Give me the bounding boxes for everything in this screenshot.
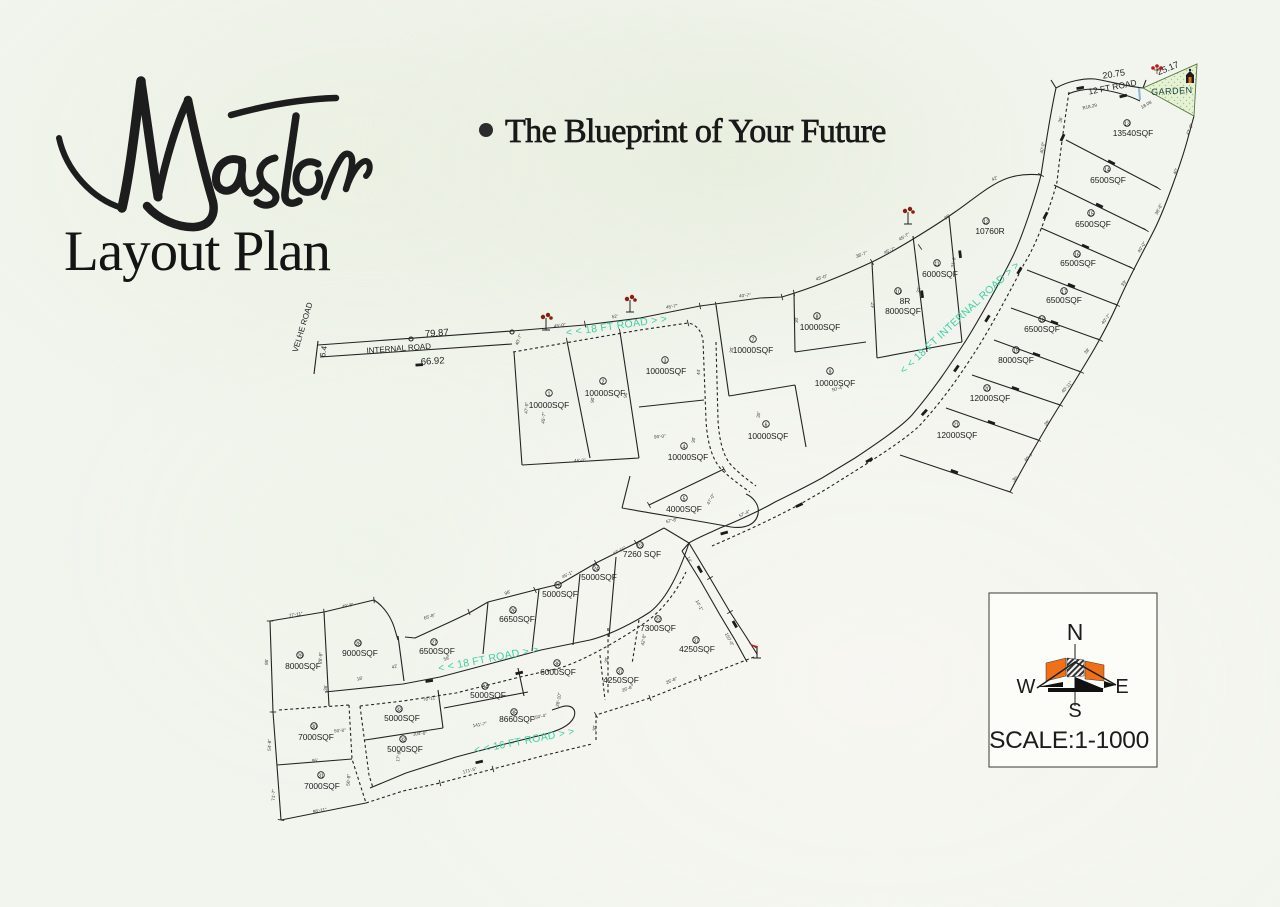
svg-text:18: 18 [1039,318,1045,324]
svg-text:9: 9 [829,370,832,376]
svg-text:36': 36' [1057,116,1063,123]
svg-text:10000SQF: 10000SQF [668,452,709,462]
svg-text:6: 6 [765,423,768,429]
svg-text:6.4: 6.4 [318,345,329,358]
svg-text:45'-7": 45'-7" [666,303,679,310]
svg-text:71'-7": 71'-7" [271,789,276,801]
svg-text:8: 8 [816,315,819,321]
svg-text:50'-8": 50'-8" [346,773,352,785]
svg-text:10: 10 [895,290,901,296]
svg-text:65'-8": 65'-8" [423,612,436,620]
svg-text:4: 4 [683,445,686,451]
svg-text:12000SQF: 12000SQF [970,393,1011,403]
svg-text:5000SQF: 5000SQF [581,572,617,582]
svg-text:VELHE ROAD: VELHE ROAD [291,301,315,353]
svg-text:14': 14' [686,556,693,564]
svg-text:12000SQF: 12000SQF [937,430,978,440]
svg-text:21: 21 [953,423,959,429]
svg-text:1: 1 [548,392,551,398]
svg-text:5000SQF: 5000SQF [387,744,423,754]
svg-text:6500SQF: 6500SQF [419,646,455,656]
svg-text:14'-1": 14'-1" [694,599,704,612]
svg-text:29: 29 [297,654,303,660]
svg-text:E: E [1115,676,1128,698]
svg-text:36': 36' [323,685,329,692]
svg-text:6650SQF: 6650SQF [499,614,535,624]
svg-text:76'-11": 76'-11" [423,695,438,702]
svg-text:39': 39' [1120,279,1128,287]
svg-text:79.87: 79.87 [425,327,449,340]
svg-text:47'-0": 47'-0" [706,493,716,506]
svg-text:54'-8": 54'-8" [267,739,272,751]
svg-text:28'-8": 28'-8" [318,651,324,663]
svg-text:8R: 8R [900,296,911,306]
svg-text:45'-7": 45'-7" [898,231,911,241]
svg-text:7: 7 [752,338,755,344]
svg-text:10760R: 10760R [975,226,1004,236]
svg-text:5000SQF: 5000SQF [542,589,578,599]
svg-text:86': 86' [264,659,269,665]
svg-text:28'-10": 28'-10" [555,692,562,707]
svg-text:10000SQF: 10000SQF [529,400,570,410]
svg-text:20: 20 [984,387,990,393]
svg-text:57'-4": 57'-4" [738,509,751,519]
svg-text:8660SQF: 8660SQF [499,714,535,724]
svg-text:98'-11": 98'-11" [312,807,327,814]
svg-text:13: 13 [1124,122,1130,128]
svg-text:5000SQF: 5000SQF [384,713,420,723]
svg-text:52': 52' [611,314,618,320]
svg-text:18.08: 18.08 [1140,99,1153,109]
svg-text:30': 30' [729,347,735,354]
svg-text:30': 30' [592,725,597,731]
svg-text:4250SQF: 4250SQF [603,675,639,685]
svg-text:38'-8": 38'-8" [1154,203,1164,216]
svg-text:8000SQF: 8000SQF [285,661,321,671]
svg-text:7000SQF: 7000SQF [298,732,334,742]
svg-text:8000SQF: 8000SQF [998,355,1034,365]
svg-text:Layout Plan: Layout Plan [64,220,331,283]
svg-text:90': 90' [590,397,596,404]
svg-text:50'-8": 50'-8" [334,728,346,734]
svg-text:42': 42' [991,175,999,182]
svg-text:10000SQF: 10000SQF [748,431,789,441]
svg-text:57'-8": 57'-8" [665,517,678,524]
svg-text:B18.29: B18.29 [1082,102,1098,110]
svg-text:13540SQF: 13540SQF [1113,128,1154,138]
svg-text:26'-8": 26'-8" [621,684,634,693]
svg-text:40'-7": 40'-7" [1023,451,1035,463]
svg-text:5: 5 [683,497,686,503]
svg-text:47'-0": 47'-0" [524,401,530,413]
svg-text:30': 30' [756,411,762,418]
svg-text:42'-8": 42'-8" [1185,123,1194,136]
svg-text:14: 14 [1104,168,1110,174]
svg-text:30': 30' [691,437,697,444]
svg-text:45'-1": 45'-1" [561,570,574,580]
svg-text:10000SQF: 10000SQF [585,388,626,398]
svg-text:49'-8": 49'-8" [341,602,354,609]
svg-text:3: 3 [664,359,667,365]
svg-text:38'-7": 38'-7" [855,250,868,259]
svg-text:42'-8": 42'-8" [640,633,647,646]
svg-text:19: 19 [1013,349,1019,355]
svg-text:7260 SQF: 7260 SQF [623,549,661,559]
svg-text:10000SQF: 10000SQF [646,366,687,376]
svg-text:44': 44' [696,369,701,375]
svg-text:7000SQF: 7000SQF [304,781,340,791]
svg-text:98': 98' [504,589,512,596]
svg-text:6500SQF: 6500SQF [1090,175,1126,185]
svg-text:150'-0": 150'-0" [724,632,735,647]
svg-text:< < 16 FT ROAD > >: < < 16 FT ROAD > > [473,725,576,756]
svg-text:10000SQF: 10000SQF [733,345,774,355]
svg-text:46'-0": 46'-0" [574,458,586,464]
svg-text:6500SQF: 6500SQF [1024,324,1060,334]
svg-text:90'-0": 90'-0" [654,433,666,439]
svg-text:6000SQF: 6000SQF [540,667,576,677]
svg-text:7300SQF: 7300SQF [640,623,676,633]
svg-text:SCALE:1-1000: SCALE:1-1000 [989,727,1149,754]
svg-text:45'-7": 45'-7" [883,246,896,255]
svg-text:45'-7": 45'-7" [541,411,547,423]
svg-text:12 FT ROAD: 12 FT ROAD [1087,77,1137,96]
svg-text:90': 90' [623,392,629,399]
svg-text:30': 30' [794,317,799,323]
svg-text:9000SQF: 9000SQF [342,648,378,658]
svg-text:38': 38' [1083,347,1091,355]
svg-text:66.92: 66.92 [420,355,444,368]
svg-text:30': 30' [604,657,610,664]
svg-text:40'-7": 40'-7" [739,292,751,298]
svg-text:47': 47' [870,302,876,309]
svg-text:12: 12 [983,220,989,226]
svg-text:20.75: 20.75 [1102,67,1126,80]
svg-text:6500SQF: 6500SQF [1060,258,1096,268]
svg-text:42': 42' [391,663,398,669]
svg-text:31: 31 [318,774,324,780]
svg-text:40'-7": 40'-7" [514,333,523,346]
svg-text:17'-8": 17'-8" [395,749,402,762]
svg-text:39': 39' [1043,419,1051,427]
svg-text:INTERNAL ROAD: INTERNAL ROAD [366,342,431,356]
svg-text:31'-0": 31'-0" [950,255,957,268]
svg-text:5000SQF: 5000SQF [470,690,506,700]
svg-text:31': 31' [916,286,922,293]
svg-text:95': 95' [312,758,318,763]
svg-text:104'-0": 104'-0" [413,730,428,736]
svg-text:15: 15 [1088,212,1094,218]
svg-text:6000SQF: 6000SQF [922,269,958,279]
svg-text:2: 2 [602,380,605,386]
svg-text:141'-7": 141'-7" [472,721,487,728]
svg-text:32: 32 [400,738,406,744]
svg-text:4250SQF: 4250SQF [679,644,715,654]
svg-text:25'-8": 25'-8" [665,676,678,685]
svg-text:45'-0": 45'-0" [815,273,828,281]
svg-text:6500SQF: 6500SQF [1075,219,1111,229]
svg-text:30: 30 [311,725,317,731]
svg-text:4000SQF: 4000SQF [666,504,702,514]
svg-text:N: N [1067,619,1084,645]
svg-text:18': 18' [356,675,363,681]
svg-text:The Blueprint of Your Future: The Blueprint of Your Future [505,113,886,150]
svg-text:8000SQF: 8000SQF [885,306,921,316]
svg-text:28: 28 [355,642,361,648]
svg-text:W: W [1017,676,1036,698]
svg-text:10000SQF: 10000SQF [800,322,841,332]
svg-text:6500SQF: 6500SQF [1046,295,1082,305]
svg-text:11: 11 [934,262,939,268]
